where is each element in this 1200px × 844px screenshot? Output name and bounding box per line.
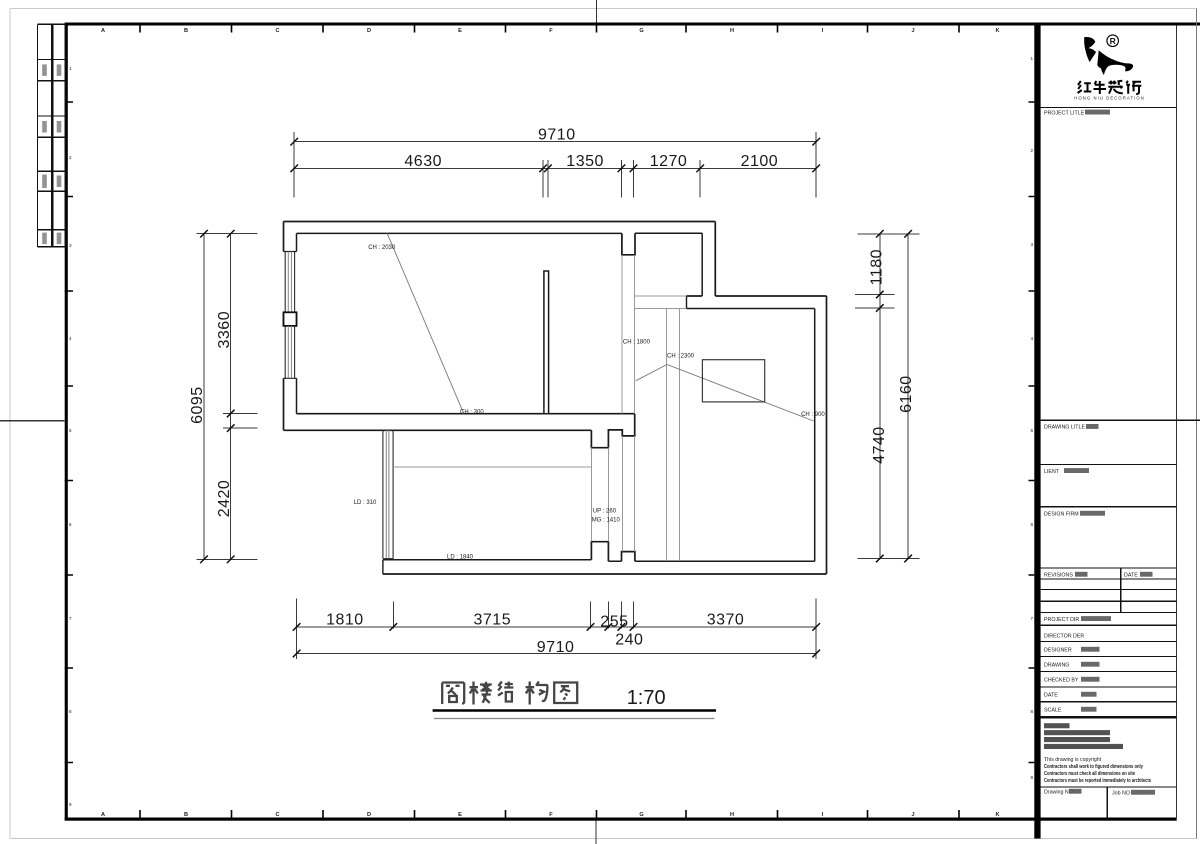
svg-text:K: K — [995, 28, 999, 34]
svg-text:B: B — [184, 812, 188, 818]
svg-text:8: 8 — [69, 709, 72, 714]
svg-text:F: F — [549, 812, 553, 818]
svg-text:I: I — [822, 812, 824, 818]
svg-text:3360: 3360 — [216, 311, 233, 349]
svg-text:DRAWING LITLE: DRAWING LITLE — [1044, 425, 1085, 431]
svg-text:E: E — [458, 28, 462, 34]
svg-text:Contractors shall work to figu: Contractors shall work to figured dimens… — [1044, 764, 1143, 770]
svg-text:F: F — [549, 28, 553, 34]
svg-text:1350: 1350 — [566, 153, 604, 170]
svg-text:PROJECT DIR: PROJECT DIR — [1044, 617, 1079, 623]
svg-text:Job NO: Job NO — [1112, 791, 1130, 797]
svg-text:2100: 2100 — [741, 153, 779, 170]
svg-text:MG : 1410: MG : 1410 — [592, 517, 621, 523]
svg-text:CH : 900: CH : 900 — [801, 412, 825, 418]
svg-text:A: A — [101, 812, 105, 818]
svg-text:1270: 1270 — [650, 153, 688, 170]
svg-text:9710: 9710 — [538, 127, 576, 144]
svg-text:3: 3 — [69, 243, 72, 248]
svg-text:HONG NIU DECORATION: HONG NIU DECORATION — [1074, 95, 1145, 100]
svg-text:9710: 9710 — [537, 639, 575, 656]
svg-text:240: 240 — [615, 632, 643, 649]
svg-text:1: 1 — [69, 66, 72, 71]
svg-text:CH : 1800: CH : 1800 — [623, 339, 651, 345]
svg-text:CH : 2300: CH : 2300 — [667, 354, 695, 360]
svg-text:5: 5 — [1030, 428, 1033, 433]
svg-text:3: 3 — [1030, 242, 1033, 247]
svg-text:LIENT: LIENT — [1044, 469, 1060, 475]
svg-text:3715: 3715 — [474, 612, 512, 629]
svg-text:1:70: 1:70 — [627, 687, 666, 709]
svg-text:3370: 3370 — [707, 612, 745, 629]
svg-text:DRAWING: DRAWING — [1044, 663, 1069, 669]
svg-text:SCALE: SCALE — [1044, 708, 1062, 714]
svg-text:2: 2 — [69, 155, 72, 160]
svg-text:PROJECT LITLE: PROJECT LITLE — [1044, 110, 1085, 116]
svg-text:G: G — [639, 812, 643, 818]
svg-text:6: 6 — [1030, 522, 1033, 527]
svg-text:1810: 1810 — [326, 612, 364, 629]
svg-text:Contractors must check all dim: Contractors must check all dimensions on… — [1044, 771, 1135, 777]
svg-text:D: D — [367, 812, 371, 818]
svg-text:DESIGNER: DESIGNER — [1044, 648, 1072, 654]
svg-text:C: C — [275, 812, 279, 818]
svg-text:1: 1 — [1030, 56, 1033, 61]
svg-text:Drawing NO: Drawing NO — [1044, 790, 1073, 796]
svg-text:CH : 300: CH : 300 — [460, 409, 484, 415]
svg-text:2420: 2420 — [216, 480, 233, 518]
svg-text:2: 2 — [1030, 148, 1033, 153]
svg-text:H: H — [730, 28, 734, 34]
svg-text:Contractors must be reported i: Contractors must be reported immediately… — [1044, 778, 1151, 784]
svg-text:7: 7 — [69, 616, 72, 621]
svg-text:D: D — [367, 28, 371, 34]
svg-text:J: J — [911, 28, 914, 34]
svg-text:6160: 6160 — [898, 375, 915, 413]
svg-text:9: 9 — [1030, 775, 1033, 780]
svg-text:C: C — [275, 28, 279, 34]
svg-text:G: G — [639, 28, 643, 34]
svg-text:DATE: DATE — [1044, 693, 1058, 699]
svg-text:I: I — [822, 28, 824, 34]
svg-text:H: H — [730, 812, 734, 818]
svg-text:B: B — [184, 28, 188, 34]
svg-text:E: E — [458, 812, 462, 818]
svg-text:DIRECTOR DER: DIRECTOR DER — [1044, 634, 1084, 640]
svg-text:4740: 4740 — [871, 426, 888, 464]
svg-text:9: 9 — [69, 802, 72, 807]
svg-text:255: 255 — [600, 614, 628, 631]
svg-text:CHECKED BY: CHECKED BY — [1044, 678, 1079, 684]
svg-text:4: 4 — [69, 336, 72, 341]
svg-text:7: 7 — [1030, 616, 1033, 621]
svg-text:6095: 6095 — [189, 386, 206, 424]
svg-text:DATE: DATE — [1124, 573, 1138, 579]
svg-text:CH : 2030: CH : 2030 — [368, 245, 396, 251]
svg-text:5: 5 — [69, 428, 72, 433]
svg-text:LD : 310: LD : 310 — [354, 500, 377, 506]
svg-text:A: A — [101, 28, 105, 34]
svg-text:1180: 1180 — [869, 249, 886, 285]
svg-text:J: J — [911, 812, 914, 818]
svg-text:This drawing is copyright: This drawing is copyright — [1044, 757, 1102, 763]
svg-text:K: K — [995, 812, 999, 818]
svg-text:6: 6 — [69, 522, 72, 527]
svg-text:UP : 260: UP : 260 — [593, 509, 617, 515]
svg-text:REVISIONS: REVISIONS — [1044, 573, 1073, 579]
svg-text:4: 4 — [1030, 336, 1033, 341]
svg-text:R: R — [1110, 36, 1116, 46]
svg-text:DESIGN FIRM: DESIGN FIRM — [1044, 512, 1079, 518]
svg-text:4630: 4630 — [404, 153, 442, 170]
svg-text:8: 8 — [1030, 709, 1033, 714]
svg-text:LD : 1840: LD : 1840 — [447, 554, 474, 560]
